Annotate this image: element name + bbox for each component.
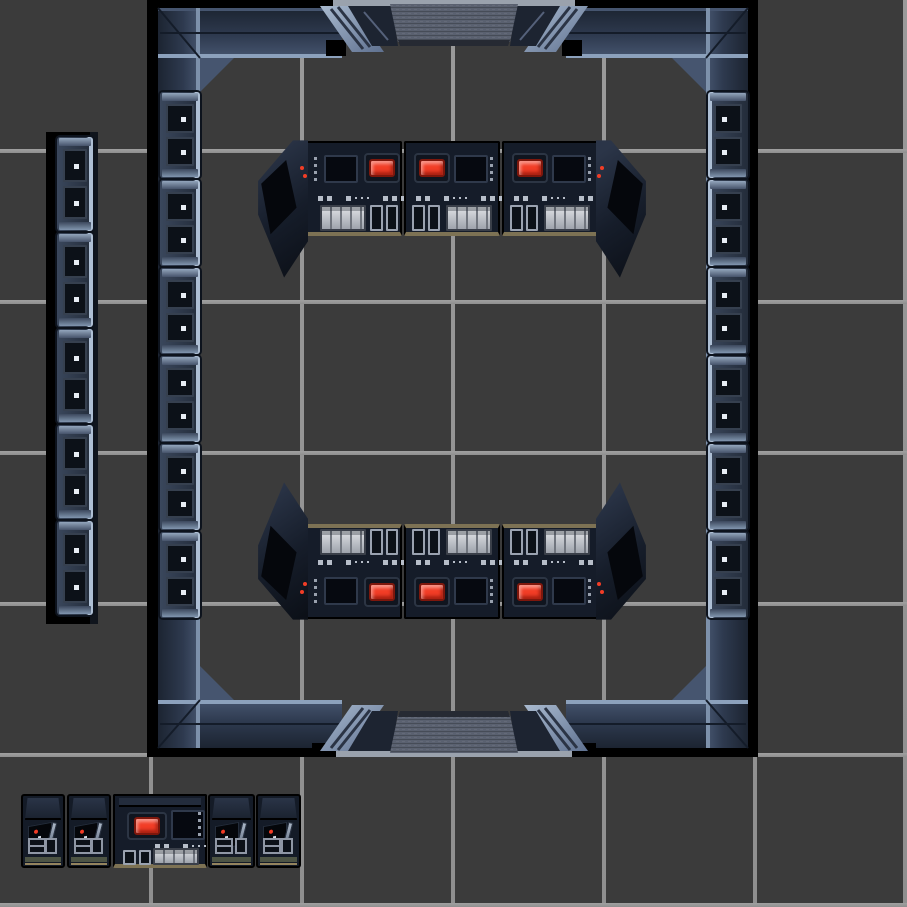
outer-panel-strip-module[interactable] bbox=[57, 425, 93, 519]
panel-screen-cell bbox=[714, 456, 742, 485]
indicator-light bbox=[318, 560, 323, 565]
panel-screen-cell bbox=[166, 577, 194, 606]
indicator-light bbox=[327, 560, 332, 565]
wedge-screen bbox=[596, 139, 648, 279]
wedge-red-dot bbox=[300, 166, 304, 170]
indicator-light bbox=[532, 562, 538, 563]
indicator-light bbox=[173, 846, 179, 847]
cabinet-door bbox=[123, 850, 136, 865]
panel-cap-top bbox=[162, 181, 198, 189]
wedge-red-dot bbox=[600, 590, 604, 594]
red-indicator-dot bbox=[269, 829, 273, 834]
indicator-light bbox=[373, 198, 379, 199]
panel-led-indicator bbox=[722, 414, 727, 419]
console-screen bbox=[324, 577, 358, 605]
panel-led-indicator bbox=[181, 205, 186, 210]
panel-screen-cell bbox=[714, 489, 742, 518]
panel-screen-cell bbox=[166, 313, 194, 342]
detached-workstation-console[interactable] bbox=[113, 794, 207, 868]
panel-cap-top bbox=[162, 445, 198, 453]
cabinet-door bbox=[412, 529, 425, 555]
console-screen bbox=[552, 155, 586, 183]
status-dot-column bbox=[314, 579, 317, 603]
indicator-light bbox=[459, 197, 461, 199]
panel-led-indicator bbox=[722, 150, 727, 155]
wedge-red-dot bbox=[600, 166, 604, 170]
cabinet-door bbox=[510, 205, 523, 231]
panel-screen-cell bbox=[714, 137, 742, 166]
indicator-light bbox=[471, 198, 477, 199]
status-dot bbox=[490, 171, 493, 174]
panel-led-indicator bbox=[722, 117, 727, 122]
cabinet-top-face bbox=[212, 798, 251, 820]
indicator-light bbox=[563, 197, 565, 199]
keyboard-strip[interactable] bbox=[446, 205, 492, 231]
panel-led-indicator bbox=[181, 557, 186, 562]
panel-led-indicator bbox=[74, 201, 79, 206]
indicator-light bbox=[192, 845, 194, 847]
indicator-light bbox=[523, 560, 528, 565]
left-wall-panel-module[interactable] bbox=[160, 444, 200, 530]
red-button[interactable] bbox=[369, 583, 395, 601]
panel-cap-bottom bbox=[59, 510, 91, 518]
top-bank-console[interactable] bbox=[502, 141, 598, 236]
red-button-plate bbox=[414, 577, 450, 607]
indicator-row bbox=[318, 559, 406, 565]
panel-cap-top bbox=[162, 93, 198, 101]
indicator-light bbox=[367, 197, 369, 199]
wedge-red-dot bbox=[303, 174, 307, 178]
bottom-bank-console[interactable] bbox=[404, 524, 500, 619]
panel-led-indicator bbox=[722, 205, 727, 210]
status-dot bbox=[588, 164, 591, 167]
detached-cabinet-console[interactable] bbox=[21, 794, 65, 868]
panel-screen-cell bbox=[714, 192, 742, 221]
status-dot bbox=[198, 819, 201, 822]
panel-cap-top bbox=[59, 522, 91, 530]
indicator-light bbox=[361, 561, 363, 563]
indicator-light bbox=[434, 562, 440, 563]
panel-cap-top bbox=[710, 93, 746, 101]
status-dot bbox=[314, 157, 317, 160]
panel-cap-top bbox=[162, 269, 198, 277]
indicator-light bbox=[327, 196, 332, 201]
cabinet-door bbox=[139, 850, 152, 865]
panel-led-indicator bbox=[74, 164, 79, 169]
status-dot bbox=[490, 157, 493, 160]
panel-cap-bottom bbox=[59, 318, 91, 326]
panel-screen-cell bbox=[63, 474, 87, 507]
indicator-light bbox=[425, 196, 430, 201]
cabinet-door bbox=[510, 529, 523, 555]
panel-led-indicator bbox=[181, 117, 186, 122]
panel-cap-top bbox=[162, 357, 198, 365]
indicator-light bbox=[481, 196, 486, 201]
cabinet-doors bbox=[263, 838, 281, 854]
panel-screen-cell bbox=[166, 401, 194, 430]
right-wall-panel-module[interactable] bbox=[708, 268, 748, 354]
red-button-plate bbox=[364, 577, 400, 607]
red-button-plate bbox=[512, 577, 548, 607]
panel-screen-cell bbox=[166, 368, 194, 397]
indicator-light bbox=[416, 560, 421, 565]
cabinet-door bbox=[412, 205, 425, 231]
keyboard-strip[interactable] bbox=[544, 205, 590, 231]
status-dot bbox=[588, 579, 591, 582]
status-dot bbox=[314, 600, 317, 603]
indicator-light bbox=[471, 562, 477, 563]
panel-led-indicator bbox=[722, 293, 727, 298]
cabinet-doors bbox=[510, 529, 538, 555]
top-bank-end-wedge[interactable] bbox=[596, 139, 648, 279]
indicator-row bbox=[514, 559, 602, 565]
panel-led-indicator bbox=[181, 469, 186, 474]
red-button-plate bbox=[414, 153, 450, 183]
indicator-row bbox=[318, 195, 406, 201]
panel-cap-bottom bbox=[162, 345, 198, 353]
indicator-light bbox=[481, 560, 486, 565]
panel-led-indicator bbox=[722, 238, 727, 243]
status-dot bbox=[490, 164, 493, 167]
right-wall-panel-module[interactable] bbox=[708, 180, 748, 266]
detached-cabinet-console[interactable] bbox=[256, 794, 301, 868]
cabinet-olive-base bbox=[25, 857, 61, 862]
cabinet-base-trim bbox=[212, 863, 251, 865]
status-dot bbox=[198, 833, 201, 836]
console-screen bbox=[552, 577, 586, 605]
panel-cap-bottom bbox=[59, 606, 91, 614]
indicator-light bbox=[367, 561, 369, 563]
panel-screen-cell bbox=[63, 186, 87, 219]
tilemap-scene bbox=[0, 0, 907, 907]
left-wall-panel-module[interactable] bbox=[160, 180, 200, 266]
cabinet-doors bbox=[123, 850, 151, 865]
panel-screen-cell bbox=[714, 544, 742, 573]
status-dot bbox=[490, 593, 493, 596]
cabinet-doors bbox=[412, 205, 440, 231]
status-dot bbox=[490, 600, 493, 603]
status-dot bbox=[588, 157, 591, 160]
right-wall-panel-module[interactable] bbox=[708, 444, 748, 530]
panel-cap-bottom bbox=[162, 521, 198, 529]
workstation-top-strip bbox=[119, 798, 201, 807]
console-screen bbox=[454, 577, 488, 605]
panel-screen-cell bbox=[166, 280, 194, 309]
indicator-light bbox=[425, 560, 430, 565]
indicator-light bbox=[434, 198, 440, 199]
panel-led-indicator bbox=[722, 326, 727, 331]
status-dot-column bbox=[314, 157, 317, 181]
red-button[interactable] bbox=[517, 583, 543, 601]
bottom-bank-end-wedge[interactable] bbox=[596, 481, 648, 621]
detached-cabinet-console[interactable] bbox=[67, 794, 111, 868]
indicator-light bbox=[444, 560, 449, 565]
status-dot bbox=[490, 579, 493, 582]
indicator-light bbox=[355, 197, 357, 199]
indicator-light bbox=[532, 198, 538, 199]
outer-panel-strip-module[interactable] bbox=[57, 329, 93, 423]
red-button[interactable] bbox=[369, 159, 395, 177]
top-bank-console[interactable] bbox=[404, 141, 500, 236]
status-dot-column bbox=[588, 579, 591, 603]
status-dot bbox=[314, 586, 317, 589]
left-wall-panel-module[interactable] bbox=[160, 92, 200, 178]
status-dot bbox=[314, 178, 317, 181]
panel-screen-cell bbox=[714, 225, 742, 254]
panel-screen-cell bbox=[166, 456, 194, 485]
status-dot bbox=[588, 171, 591, 174]
cabinet-side-box bbox=[45, 838, 57, 854]
indicator-light bbox=[569, 198, 575, 199]
panel-cap-bottom bbox=[162, 169, 198, 177]
indicator-light bbox=[588, 560, 593, 565]
panel-screen-cell bbox=[63, 378, 87, 411]
indicator-light bbox=[346, 196, 351, 201]
cabinet-door bbox=[428, 529, 441, 555]
cabinet-door bbox=[370, 205, 383, 231]
status-dot bbox=[588, 178, 591, 181]
panel-led-indicator bbox=[722, 381, 727, 386]
indicator-light bbox=[465, 197, 467, 199]
cabinet-top-face bbox=[71, 798, 107, 820]
panel-led-indicator bbox=[181, 381, 186, 386]
indicator-light bbox=[346, 560, 351, 565]
cabinet-base-trim bbox=[71, 863, 107, 865]
panel-led-indicator bbox=[74, 356, 79, 361]
top-bank-console[interactable] bbox=[306, 141, 402, 236]
wedge-red-dot bbox=[597, 174, 601, 178]
wedge-screen bbox=[596, 481, 648, 621]
indicator-light bbox=[588, 196, 593, 201]
status-dot bbox=[588, 600, 591, 603]
panel-cap-bottom bbox=[710, 433, 746, 441]
panel-led-indicator bbox=[181, 414, 186, 419]
keyboard-strip[interactable] bbox=[446, 529, 492, 555]
status-dot-column bbox=[198, 812, 201, 836]
panel-led-indicator bbox=[74, 260, 79, 265]
cabinet-base-trim bbox=[25, 863, 61, 865]
indicator-light bbox=[551, 561, 553, 563]
detached-cabinet-console[interactable] bbox=[208, 794, 255, 868]
status-dot bbox=[588, 586, 591, 589]
cabinet-side-box bbox=[235, 838, 247, 854]
indicator-light bbox=[563, 561, 565, 563]
panel-led-indicator bbox=[74, 297, 79, 302]
cabinet-door bbox=[526, 205, 539, 231]
panel-cap-top bbox=[59, 234, 91, 242]
red-indicator-dot bbox=[80, 829, 84, 834]
status-dot bbox=[314, 171, 317, 174]
red-button-plate bbox=[364, 153, 400, 183]
status-dot bbox=[198, 826, 201, 829]
red-button-plate bbox=[512, 153, 548, 183]
red-indicator-dot bbox=[34, 829, 38, 834]
panel-screen-cell bbox=[166, 544, 194, 573]
indicator-light bbox=[542, 560, 547, 565]
status-dot-column bbox=[490, 157, 493, 181]
panel-led-indicator bbox=[181, 238, 186, 243]
indicator-row bbox=[514, 195, 602, 201]
right-wall-panel-module[interactable] bbox=[708, 532, 748, 618]
panel-led-indicator bbox=[722, 557, 727, 562]
red-button[interactable] bbox=[419, 583, 445, 601]
panel-cap-bottom bbox=[710, 257, 746, 265]
indicator-light bbox=[514, 196, 519, 201]
panel-cap-bottom bbox=[59, 414, 91, 422]
indicator-light bbox=[383, 196, 388, 201]
keyboard-strip[interactable] bbox=[153, 848, 199, 865]
panel-screen-cell bbox=[714, 577, 742, 606]
cabinet-top-face bbox=[260, 798, 297, 820]
cabinet-doors bbox=[510, 205, 538, 231]
panel-led-indicator bbox=[74, 585, 79, 590]
left-wall-panel-module[interactable] bbox=[160, 532, 200, 618]
left-wall-panel-module[interactable] bbox=[160, 268, 200, 354]
panel-screen-cell bbox=[714, 280, 742, 309]
panel-cap-top bbox=[59, 138, 91, 146]
panel-cap-bottom bbox=[710, 169, 746, 177]
panel-cap-top bbox=[710, 533, 746, 541]
indicator-light bbox=[453, 561, 455, 563]
panel-screen-cell bbox=[714, 104, 742, 133]
panel-screen-cell bbox=[63, 341, 87, 374]
top-bank-end-wedge[interactable] bbox=[256, 139, 308, 279]
panel-cap-bottom bbox=[162, 433, 198, 441]
panel-cap-bottom bbox=[59, 222, 91, 230]
panel-screen-cell bbox=[63, 533, 87, 566]
panel-screen-cell bbox=[63, 570, 87, 603]
panel-cap-top bbox=[710, 357, 746, 365]
panel-cap-bottom bbox=[162, 609, 198, 617]
panel-cap-top bbox=[710, 269, 746, 277]
panel-screen-cell bbox=[63, 437, 87, 470]
console-screen bbox=[324, 155, 358, 183]
panel-led-indicator bbox=[181, 590, 186, 595]
outer-panel-strip-module[interactable] bbox=[57, 233, 93, 327]
indicator-light bbox=[490, 560, 495, 565]
indicator-row bbox=[416, 195, 504, 201]
panel-cap-top bbox=[59, 426, 91, 434]
panel-led-indicator bbox=[722, 469, 727, 474]
bottom-bank-console[interactable] bbox=[502, 524, 598, 619]
indicator-light bbox=[569, 562, 575, 563]
panel-led-indicator bbox=[181, 150, 186, 155]
panel-led-indicator bbox=[74, 393, 79, 398]
console-screen bbox=[454, 155, 488, 183]
cabinet-olive-base bbox=[260, 857, 297, 862]
keyboard-strip[interactable] bbox=[320, 529, 366, 555]
cabinet-door bbox=[526, 529, 539, 555]
cabinet-side-box bbox=[91, 838, 103, 854]
indicator-light bbox=[523, 196, 528, 201]
status-dot bbox=[314, 164, 317, 167]
panel-led-indicator bbox=[74, 452, 79, 457]
left-wall-panel-module[interactable] bbox=[160, 356, 200, 442]
indicator-light bbox=[204, 845, 206, 847]
panel-cap-top bbox=[162, 533, 198, 541]
indicator-light bbox=[392, 560, 397, 565]
indicator-light bbox=[542, 196, 547, 201]
panel-screen-cell bbox=[166, 225, 194, 254]
cabinet-base-trim bbox=[260, 863, 297, 865]
right-wall-panel-module[interactable] bbox=[708, 356, 748, 442]
panel-cap-top bbox=[59, 330, 91, 338]
indicator-light bbox=[557, 561, 559, 563]
red-button[interactable] bbox=[419, 159, 445, 177]
indicator-row bbox=[416, 559, 504, 565]
indicator-light bbox=[453, 197, 455, 199]
cabinet-door bbox=[370, 529, 383, 555]
indicator-light bbox=[373, 562, 379, 563]
status-dot bbox=[314, 579, 317, 582]
objects-layer bbox=[0, 0, 907, 907]
panel-led-indicator bbox=[74, 489, 79, 494]
indicator-light bbox=[336, 562, 342, 563]
red-indicator-dot bbox=[221, 829, 225, 834]
indicator-light bbox=[514, 560, 519, 565]
cabinet-olive-base bbox=[71, 857, 107, 862]
red-button[interactable] bbox=[134, 817, 160, 835]
indicator-light bbox=[361, 197, 363, 199]
status-dot bbox=[588, 593, 591, 596]
cabinet-door bbox=[428, 205, 441, 231]
panel-cap-top bbox=[710, 445, 746, 453]
outer-panel-strip-module[interactable] bbox=[57, 137, 93, 231]
panel-led-indicator bbox=[181, 326, 186, 331]
indicator-light bbox=[490, 196, 495, 201]
panel-led-indicator bbox=[722, 502, 727, 507]
indicator-light bbox=[557, 197, 559, 199]
status-dot bbox=[198, 812, 201, 815]
panel-screen-cell bbox=[63, 282, 87, 315]
bottom-bank-end-wedge[interactable] bbox=[256, 481, 308, 621]
panel-screen-cell bbox=[166, 137, 194, 166]
bottom-bank-console[interactable] bbox=[306, 524, 402, 619]
keyboard-strip[interactable] bbox=[320, 205, 366, 231]
panel-screen-cell bbox=[166, 192, 194, 221]
cabinet-top-face bbox=[25, 798, 61, 820]
red-button[interactable] bbox=[517, 159, 543, 177]
indicator-light bbox=[383, 560, 388, 565]
red-button-plate bbox=[127, 812, 167, 840]
indicator-light bbox=[198, 845, 200, 847]
status-dot-column bbox=[490, 579, 493, 603]
outer-panel-strip-module[interactable] bbox=[57, 521, 93, 615]
panel-cap-bottom bbox=[710, 521, 746, 529]
cabinet-door bbox=[386, 529, 399, 555]
panel-led-indicator bbox=[181, 502, 186, 507]
cabinet-side-box bbox=[281, 838, 293, 854]
status-dot-column bbox=[588, 157, 591, 181]
panel-screen-cell bbox=[166, 489, 194, 518]
indicator-light bbox=[392, 196, 397, 201]
cabinet-doors bbox=[74, 838, 92, 854]
cabinet-doors bbox=[370, 529, 398, 555]
indicator-light bbox=[579, 560, 584, 565]
panel-screen-cell bbox=[714, 313, 742, 342]
status-dot bbox=[314, 593, 317, 596]
panel-screen-cell bbox=[714, 401, 742, 430]
panel-cap-bottom bbox=[162, 257, 198, 265]
status-dot bbox=[490, 586, 493, 589]
panel-cap-bottom bbox=[710, 345, 746, 353]
wedge-red-dot bbox=[300, 590, 304, 594]
right-wall-panel-module[interactable] bbox=[708, 92, 748, 178]
wedge-screen bbox=[256, 481, 308, 621]
cabinet-doors bbox=[412, 529, 440, 555]
indicator-light bbox=[551, 197, 553, 199]
keyboard-strip[interactable] bbox=[544, 529, 590, 555]
